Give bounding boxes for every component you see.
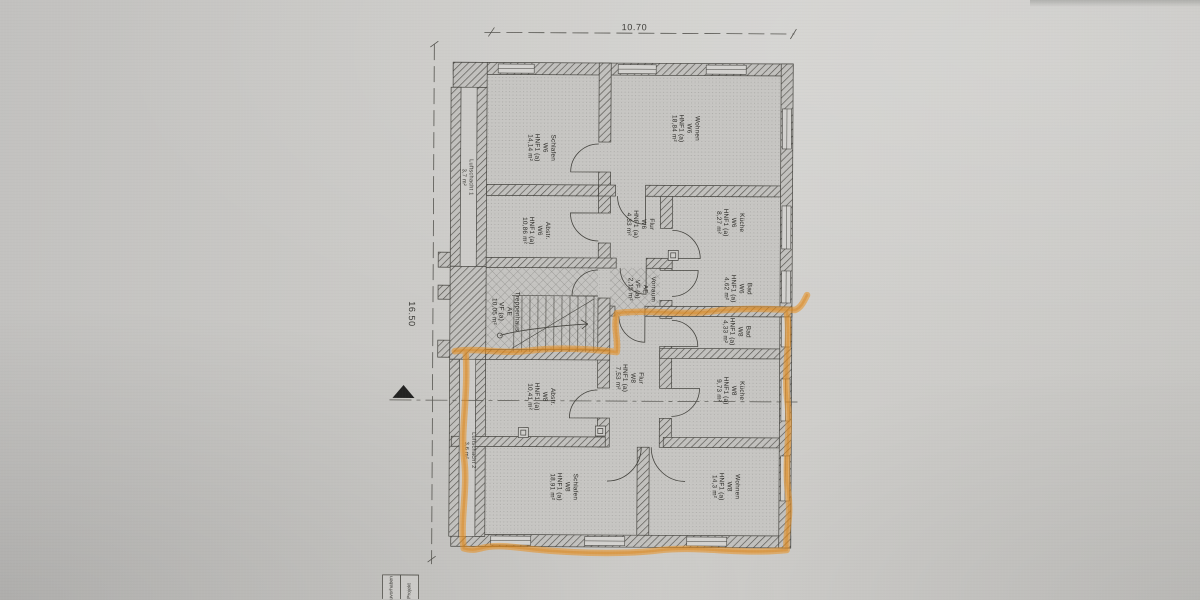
room-label-abstell-w6: Abstr.W6HNF1 (a)10,86 m² (520, 217, 551, 245)
room-label-bad-w8: BadW8HNF1 (a)4,33 m² (720, 318, 751, 346)
room-label-flur-w8: FlurW8HNF1 (a)7,53 m² (613, 364, 644, 392)
floor-plan-base-svg (0, 0, 1200, 600)
room-label-bad-w6: BadW6HNF1 (a)4,62 m² (721, 275, 752, 303)
floor-plan: SchlafenW6HNF1 (a)14,14 m² WohnenW6HNF1 … (0, 0, 1200, 600)
shaft-label-luftschacht-1: Luftschacht 13,7 m² (460, 159, 474, 196)
title-block-cell-1: Bauvorhaben (388, 576, 394, 600)
title-block-cell-2: Projekt (406, 583, 412, 599)
dimension-width-label: 10.70 (622, 22, 648, 32)
room-label-schlafen-w8: SchlafenW8HNF1 (a)18,91 m² (547, 473, 578, 501)
room-label-abstell-w8: Abstr.W8HNF1 (a)10,41 m² (525, 383, 556, 411)
room-label-schlafen-w6: SchlafenW6HNF1 (a)14,14 m² (525, 134, 556, 162)
scanned-floor-plan-photo: SchlafenW6HNF1 (a)14,14 m² WohnenW6HNF1 … (0, 0, 1200, 600)
dimension-height-label: 16.50 (407, 301, 417, 327)
room-label-kueche-w6: KücheW6HNF1 (a)8,27 m² (714, 209, 745, 237)
room-label-treppenhaus: TreppenhausAEVF (a)10,05 m² (489, 292, 520, 332)
level-marker-icon (392, 385, 414, 398)
room-label-kueche-w8: KücheW8HNF1 (a)9,73 m² (714, 377, 745, 405)
room-label-wohnen-w8: WohnenW8HNF1 (a)14,3 m² (709, 473, 740, 501)
room-label-wohnen-w6: WohnenW6HNF1 (a)18,84 m² (669, 114, 700, 142)
room-label-flur-w6: FlurW6HNF1 (a)4,33 m² (624, 210, 655, 238)
shaft-label-luftschacht-2: Luftschacht 23,6 m² (462, 432, 476, 469)
room-label-vorraum: VorraumAEVF (a)2,15 m² (625, 276, 656, 302)
